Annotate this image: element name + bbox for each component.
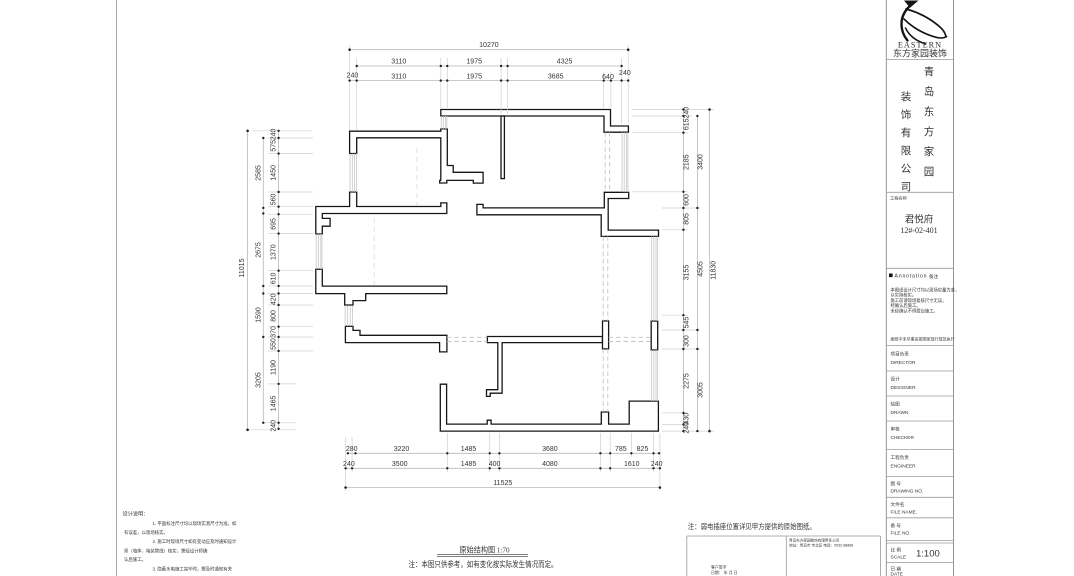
svg-text:饰: 饰 <box>901 108 912 121</box>
svg-text:有误差，以现场核实。: 有误差，以现场核实。 <box>124 529 168 536</box>
svg-text:项目负责: 项目负责 <box>891 351 910 358</box>
svg-text:工程负责: 工程负责 <box>891 454 910 461</box>
svg-text:Annotation: Annotation <box>895 274 928 280</box>
svg-text:11015: 11015 <box>239 258 246 277</box>
svg-text:青: 青 <box>924 65 935 78</box>
svg-text:备注: 备注 <box>929 273 939 280</box>
svg-text:240: 240 <box>619 70 631 77</box>
svg-text:1975: 1975 <box>466 59 482 66</box>
svg-text:DIRECTOR: DIRECTOR <box>891 360 916 366</box>
svg-text:3400: 3400 <box>698 154 705 170</box>
svg-text:方: 方 <box>924 125 935 138</box>
svg-text:ENGINEER: ENGINEER <box>891 464 917 470</box>
svg-text:1370: 1370 <box>270 244 277 260</box>
svg-text:240: 240 <box>684 422 691 434</box>
svg-text:绘图: 绘图 <box>891 401 901 408</box>
svg-text:1590: 1590 <box>255 307 262 323</box>
svg-text:10270: 10270 <box>479 42 499 49</box>
svg-text:3500: 3500 <box>392 461 408 468</box>
svg-text:设计: 设计 <box>891 376 901 383</box>
svg-text:SCALE: SCALE <box>891 555 907 561</box>
svg-text:认后施工。: 认后施工。 <box>124 556 146 563</box>
svg-text:1:100: 1:100 <box>916 549 940 560</box>
svg-text:2185: 2185 <box>684 154 691 170</box>
svg-text:图纸中未尽事宜按国家现行规范执行: 图纸中未尽事宜按国家现行规范执行 <box>891 336 955 342</box>
svg-text:550: 550 <box>270 338 277 350</box>
svg-text:3685: 3685 <box>548 73 564 80</box>
svg-text:575: 575 <box>270 140 277 152</box>
svg-text:限: 限 <box>901 145 912 157</box>
svg-text:1485: 1485 <box>461 446 477 453</box>
svg-text:FILE NO.: FILE NO. <box>891 531 911 537</box>
svg-text:4080: 4080 <box>542 461 558 468</box>
svg-text:未经确认不得擅自施工。: 未经确认不得擅自施工。 <box>891 307 938 314</box>
svg-text:11830: 11830 <box>710 261 717 280</box>
svg-text:工程名称: 工程名称 <box>890 195 907 202</box>
svg-text:2275: 2275 <box>684 373 691 389</box>
svg-text:师（墙体、暗装管线）核实，需经设计师确: 师（墙体、暗装管线）核实，需经设计师确 <box>124 547 208 554</box>
svg-text:280: 280 <box>346 446 358 453</box>
svg-text:3680: 3680 <box>542 446 558 453</box>
svg-text:文件名: 文件名 <box>891 501 905 508</box>
svg-text:400: 400 <box>489 461 501 468</box>
svg-text:装: 装 <box>901 90 912 103</box>
svg-text:1975: 1975 <box>466 73 482 80</box>
svg-text:370: 370 <box>270 326 277 338</box>
svg-text:设计说明：: 设计说明： <box>123 510 149 518</box>
svg-text:FILE NAME.: FILE NAME. <box>891 510 918 516</box>
svg-text:客户签字: 客户签字 <box>711 565 727 570</box>
svg-text:3005: 3005 <box>698 382 705 398</box>
svg-text:3220: 3220 <box>394 446 410 453</box>
svg-text:4505: 4505 <box>698 261 705 277</box>
svg-text:1465: 1465 <box>270 396 277 412</box>
svg-text:3205: 3205 <box>255 372 262 388</box>
svg-text:君悦府: 君悦府 <box>905 214 934 226</box>
svg-text:3155: 3155 <box>684 265 691 281</box>
svg-text:240: 240 <box>347 73 359 80</box>
svg-text:3. 隐蔽水电施工完毕时，需及时通知有关: 3. 隐蔽水电施工完毕时，需及时通知有关 <box>153 566 233 573</box>
svg-text:4325: 4325 <box>557 59 573 66</box>
svg-text:东方家园装饰: 东方家园装饰 <box>893 48 947 59</box>
svg-text:640: 640 <box>602 74 614 81</box>
svg-text:560: 560 <box>270 193 277 205</box>
svg-text:1610: 1610 <box>624 461 640 468</box>
svg-text:DESIGNER: DESIGNER <box>891 385 917 391</box>
svg-text:615: 615 <box>684 118 691 130</box>
svg-text:545: 545 <box>684 317 691 329</box>
svg-text:2585: 2585 <box>255 165 262 181</box>
svg-text:东: 东 <box>924 105 935 118</box>
svg-text:审核: 审核 <box>891 426 901 433</box>
svg-text:公: 公 <box>901 163 912 175</box>
svg-text:注：本图只供参考，如有变化按实际发生情况而定。: 注：本图只供参考，如有变化按实际发生情况而定。 <box>409 559 558 569</box>
svg-text:家: 家 <box>924 145 935 158</box>
svg-text:240: 240 <box>651 461 663 468</box>
svg-text:12#-02-401: 12#-02-401 <box>900 226 937 235</box>
svg-text:240: 240 <box>270 420 277 432</box>
svg-text:DRAWN: DRAWN <box>891 410 909 416</box>
svg-text:825: 825 <box>637 446 649 453</box>
svg-text:300: 300 <box>684 335 691 347</box>
svg-text:岛: 岛 <box>924 85 935 98</box>
svg-text:2. 施工时现场尺寸如有变动应及时通知设计: 2. 施工时现场尺寸如有变动应及时通知设计 <box>153 538 238 545</box>
svg-text:原始结构图 1:70: 原始结构图 1:70 <box>460 545 510 555</box>
svg-text:园: 园 <box>924 166 935 178</box>
svg-text:地址：青岛市 市北区 电话：0532-88888: 地址：青岛市 市北区 电话：0532-88888 <box>789 543 853 548</box>
svg-text:805: 805 <box>684 213 691 225</box>
svg-text:司: 司 <box>901 181 912 193</box>
svg-text:比 例: 比 例 <box>891 547 902 554</box>
svg-text:695: 695 <box>270 218 277 230</box>
svg-text:注：弱电插座位置详见甲方提供的原始图纸。: 注：弱电插座位置详见甲方提供的原始图纸。 <box>688 522 816 531</box>
svg-text:有: 有 <box>901 126 912 139</box>
svg-text:11525: 11525 <box>493 480 512 487</box>
svg-text:600: 600 <box>684 194 691 206</box>
svg-text:青岛东方家园装饰有限责任公司: 青岛东方家园装饰有限责任公司 <box>789 538 840 543</box>
svg-text:CHECKER: CHECKER <box>891 435 915 441</box>
svg-text:240: 240 <box>684 107 691 119</box>
svg-text:备 号: 备 号 <box>891 522 902 529</box>
svg-text:610: 610 <box>270 272 277 284</box>
svg-text:DRAWING NO.: DRAWING NO. <box>891 489 924 495</box>
svg-text:240: 240 <box>343 461 355 468</box>
svg-text:800: 800 <box>270 310 277 322</box>
svg-text:日期： 年 月 日: 日期： 年 月 日 <box>711 570 738 575</box>
svg-text:1. 平面标注尺寸均以现场实测尺寸为准，如: 1. 平面标注尺寸均以现场实测尺寸为准，如 <box>153 520 238 527</box>
svg-text:2675: 2675 <box>255 242 262 258</box>
svg-text:1450: 1450 <box>270 165 277 181</box>
svg-text:DATE: DATE <box>891 572 903 576</box>
svg-text:1485: 1485 <box>461 461 477 468</box>
svg-text:785: 785 <box>615 446 627 453</box>
svg-text:240: 240 <box>270 128 277 140</box>
svg-text:3110: 3110 <box>391 73 406 80</box>
svg-text:1190: 1190 <box>270 360 277 375</box>
svg-text:3110: 3110 <box>391 59 406 66</box>
svg-text:420: 420 <box>270 293 277 305</box>
